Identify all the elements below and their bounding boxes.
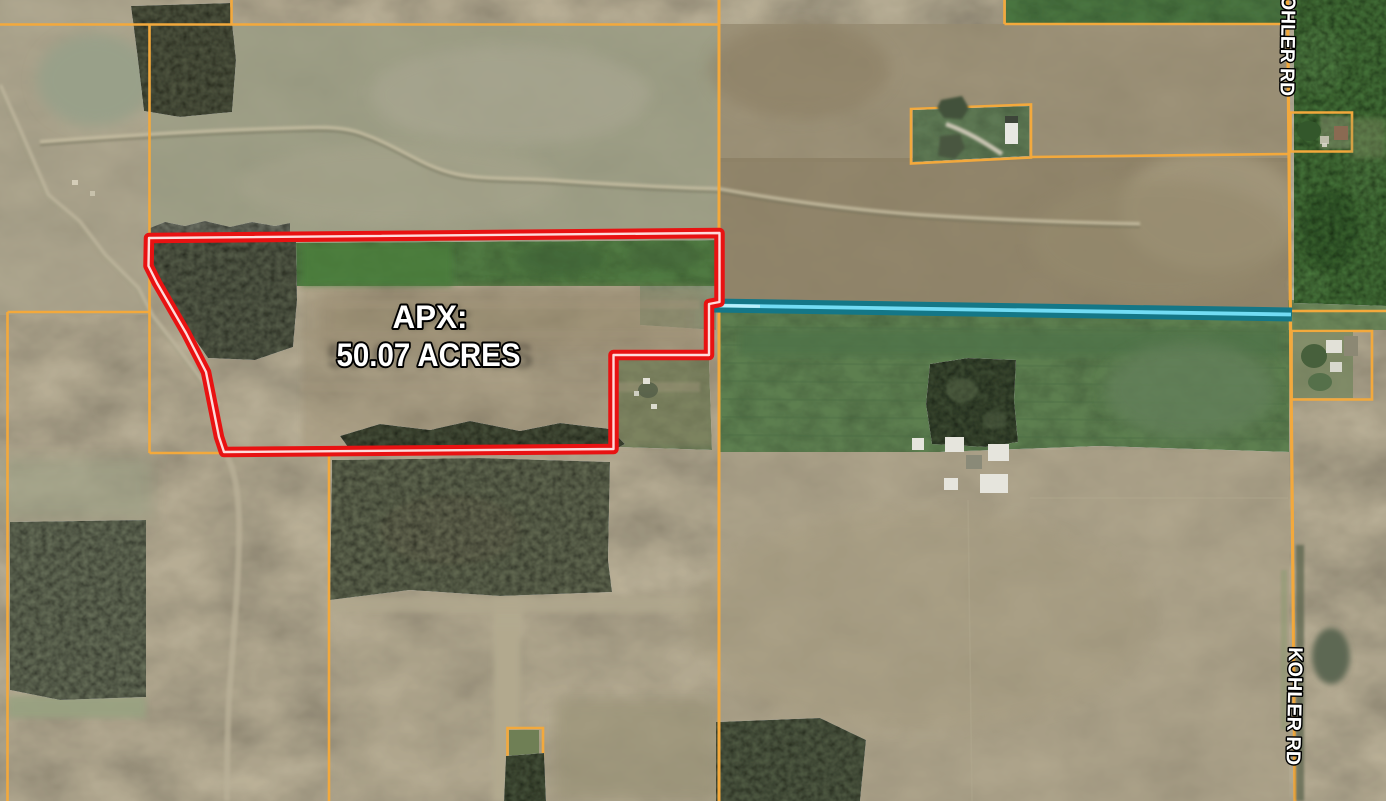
svg-text:50.07 ACRES: 50.07 ACRES [337, 337, 521, 373]
svg-text:KOHLER RD: KOHLER RD [1275, 0, 1299, 96]
svg-text:KOHLER RD: KOHLER RD [1282, 647, 1306, 765]
svg-text:APX:: APX: [393, 299, 468, 335]
